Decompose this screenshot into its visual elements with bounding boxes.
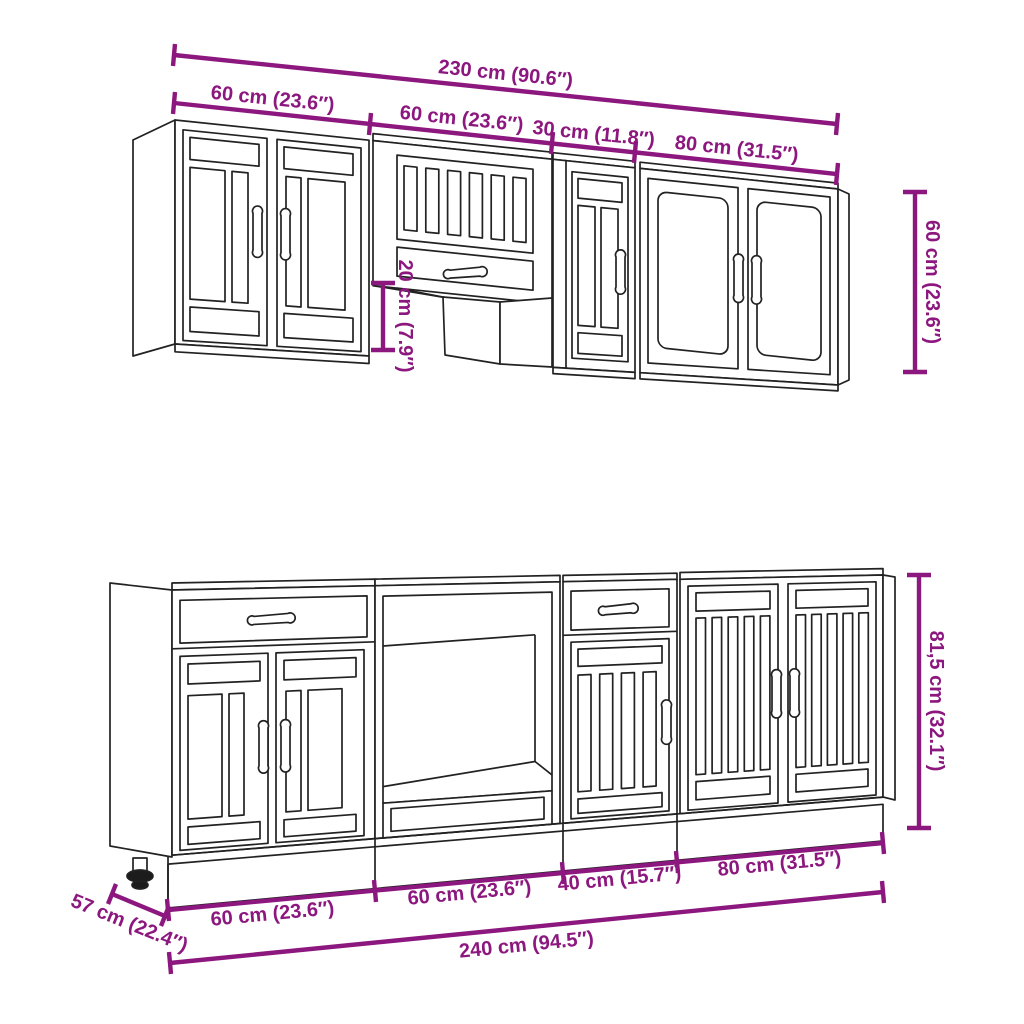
upper-open-section-height-label: 20 cm (7.9″): [394, 260, 416, 373]
adjustable-foot: [127, 858, 153, 889]
upper-segment-label-0: 60 cm (23.6″): [210, 82, 336, 117]
base-cabinet-60: [110, 579, 375, 857]
base-cabinet-80: [680, 569, 895, 814]
kitchen-cabinet-dimension-diagram: 230 cm (90.6″) 60 cm (23.6″) 60 cm (23.6…: [0, 0, 1024, 1024]
upper-cabinet-height-label: 60 cm (23.6″): [921, 220, 943, 344]
wall-cabinet-80: [640, 162, 849, 391]
lower-cabinet-height-label: 81,5 cm (32.1″): [925, 631, 947, 772]
base-cabinet-40: [563, 573, 677, 823]
wall-cabinet-60-doors: [133, 120, 369, 364]
cabinet-line-drawing: [110, 120, 895, 908]
oven-cabinet-60: [375, 575, 560, 838]
dim-upper-open-section-height: [371, 283, 395, 350]
wall-cabinet-30: [553, 153, 635, 379]
diagram-canvas: 230 cm (90.6″) 60 cm (23.6″) 60 cm (23.6…: [0, 0, 1024, 1024]
